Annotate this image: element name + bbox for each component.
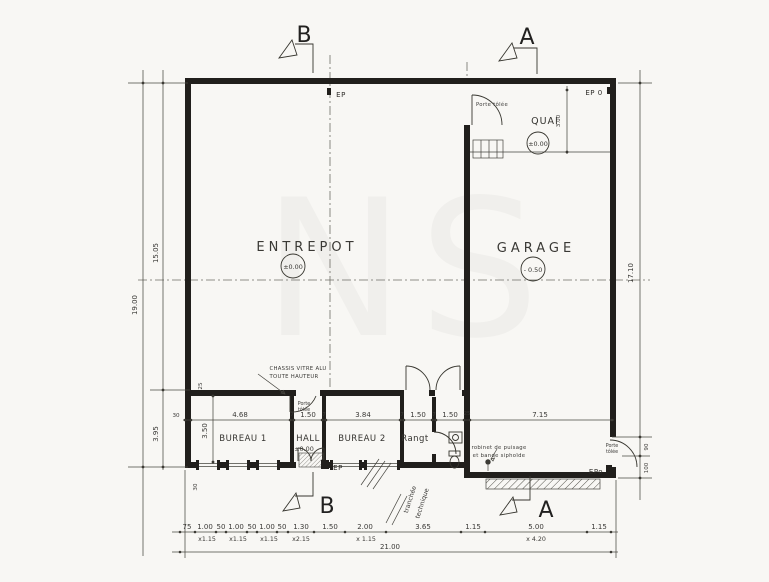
dim-bureau-depth: 3.50 bbox=[201, 423, 209, 439]
ep-symbol-garage bbox=[606, 465, 612, 474]
label-bureau2: BUREAU 2 bbox=[338, 434, 385, 444]
ep-top-right: EP 0 bbox=[585, 89, 602, 97]
floor-plan-sheet: NS bbox=[0, 0, 769, 582]
label-bureau1: BUREAU 1 bbox=[219, 434, 266, 444]
dim-fac-130: 1.30 bbox=[293, 523, 309, 531]
ep-symbol-hall bbox=[321, 460, 329, 469]
dim-int-150b: 1.50 bbox=[410, 411, 426, 419]
room-rangt bbox=[404, 396, 432, 462]
dim-int-7c: 7 bbox=[400, 412, 404, 418]
section-marker-top-b: B bbox=[279, 23, 313, 73]
facade-dimension-row: 75 1.00 50 1.00 50 1.00 50 1.30 1.50 2.0… bbox=[183, 523, 607, 551]
garage-door-threshold bbox=[486, 479, 600, 489]
washbasin-icon bbox=[449, 432, 462, 443]
dim-fac-100c: 1.00 bbox=[259, 523, 275, 531]
dim-int-7d: 7 bbox=[432, 412, 436, 418]
dim-int-7a: 7 bbox=[290, 412, 294, 418]
window bbox=[226, 460, 250, 470]
dim-fac-50a: 50 bbox=[217, 523, 226, 531]
ep-symbol-top bbox=[327, 88, 331, 95]
room-bureau2 bbox=[326, 396, 400, 462]
level-marker-quai: ±0.00 bbox=[527, 132, 549, 154]
wall-west bbox=[185, 78, 191, 468]
dim-wall-30-bottom: 30 bbox=[193, 483, 199, 491]
dim-int-150a: 1.50 bbox=[300, 411, 316, 419]
porte-tolee-garage-1: Porte bbox=[606, 443, 619, 449]
level-entrepot: ±0.00 bbox=[283, 263, 303, 271]
dim-sub-115a: x1.15 bbox=[198, 536, 216, 543]
dim-int-25: 25 bbox=[463, 411, 471, 417]
porte-tolee-quai: Porte tôlée bbox=[476, 101, 508, 108]
label-garage: GARAGE bbox=[497, 241, 575, 256]
ep-top: EP bbox=[336, 91, 346, 99]
partition-rangt-wc-lower bbox=[432, 454, 436, 462]
interior-dimension-row: 30 4.68 7 1.50 7 3.84 7 1.50 7 1.50 25 7… bbox=[172, 411, 547, 419]
dim-fac-100a: 1.00 bbox=[197, 523, 213, 531]
window bbox=[256, 460, 280, 470]
door-quai bbox=[472, 95, 502, 125]
label-entrepot: ENTREPOT bbox=[256, 240, 357, 255]
ep-symbol-top-right bbox=[607, 87, 612, 94]
ep-garage: EPo bbox=[589, 468, 603, 476]
stairs-icon bbox=[473, 140, 503, 158]
dim-sub-115b: x1.15 bbox=[229, 536, 247, 543]
section-letter-b-bottom: B bbox=[319, 494, 334, 519]
level-hall: ±0.00 bbox=[294, 445, 314, 453]
robinet-note-line2: et bande siphoïde bbox=[473, 453, 526, 459]
dim-int-468: 4.68 bbox=[232, 411, 248, 419]
dim-fac-115a: 1.15 bbox=[465, 523, 481, 531]
section-marker-top-a: A bbox=[499, 25, 537, 74]
tranchee-hatch bbox=[361, 459, 407, 525]
window bbox=[196, 460, 220, 470]
dim-right-main: 17.10 bbox=[627, 263, 635, 283]
dim-fac-115b: 1.15 bbox=[591, 523, 607, 531]
dim-left-upper: 15.05 bbox=[152, 243, 160, 263]
dim-int-7b: 7 bbox=[322, 412, 326, 418]
doormat-hatch bbox=[299, 453, 323, 467]
dim-int-30: 30 bbox=[172, 413, 180, 419]
level-quai: ±0.00 bbox=[528, 140, 548, 148]
porte-tolee-hall-1: Porte bbox=[298, 401, 311, 407]
dim-fac-50b: 50 bbox=[248, 523, 257, 531]
dim-total: 21.00 bbox=[380, 543, 400, 551]
partition-bureau2-rangt bbox=[400, 396, 404, 462]
dim-fac-75: 75 bbox=[183, 523, 192, 531]
label-hall: HALL bbox=[296, 434, 320, 444]
dim-left-lower: 3.95 bbox=[152, 426, 160, 442]
chassis-note-line2: TOUTE HAUTEUR bbox=[268, 374, 318, 380]
dim-int-384: 3.84 bbox=[355, 411, 371, 419]
dim-fac-200: 2.00 bbox=[357, 523, 373, 531]
section-marker-bottom-b: B bbox=[283, 472, 335, 519]
dim-left-outer: 19.00 bbox=[131, 295, 139, 315]
robinet-note-line1: robinet de puisage bbox=[471, 445, 526, 451]
porte-tolee-garage-2: tôlée bbox=[606, 448, 618, 455]
section-letter-a-bottom: A bbox=[538, 498, 553, 523]
ep-hall: EP bbox=[333, 464, 343, 472]
label-quai: QUAI bbox=[531, 116, 559, 127]
label-rangt: Rangt bbox=[401, 434, 429, 444]
dim-int-150c: 1.50 bbox=[442, 411, 458, 419]
dim-sub-115c: x1.15 bbox=[260, 536, 278, 543]
dim-right-100: 100 bbox=[644, 462, 650, 473]
dim-fac-365: 3.65 bbox=[415, 523, 431, 531]
dim-right-90: 90 bbox=[644, 443, 650, 451]
dim-sub-420: x 4.20 bbox=[526, 536, 546, 543]
chassis-note-line1: CHASSIS VITRE ALU bbox=[269, 366, 326, 372]
dim-fac-100b: 1.00 bbox=[228, 523, 244, 531]
wall-entrepot-garage bbox=[464, 125, 470, 478]
dim-int-715: 7.15 bbox=[532, 411, 548, 419]
tranchee-label-1: tranchée bbox=[402, 485, 418, 514]
dim-sub-115d: x 1.15 bbox=[356, 536, 376, 543]
dim-wall-25: 25 bbox=[198, 382, 204, 390]
dim-fac-150: 1.50 bbox=[322, 523, 338, 531]
dim-fac-500: 5.00 bbox=[528, 523, 544, 531]
floor-plan-drawing: NS bbox=[0, 0, 769, 582]
wall-north bbox=[185, 78, 616, 84]
level-garage: - 0.50 bbox=[524, 266, 543, 274]
dim-fac-50c: 50 bbox=[278, 523, 287, 531]
section-letter-a-top: A bbox=[519, 25, 534, 50]
tranchee-label-2: technique bbox=[414, 487, 430, 519]
scan-watermark: NS bbox=[263, 159, 554, 380]
wall-east-upper bbox=[610, 78, 616, 437]
dim-quai-depth: 3.00 bbox=[556, 114, 562, 127]
dim-sub-215: x2.15 bbox=[292, 536, 310, 543]
